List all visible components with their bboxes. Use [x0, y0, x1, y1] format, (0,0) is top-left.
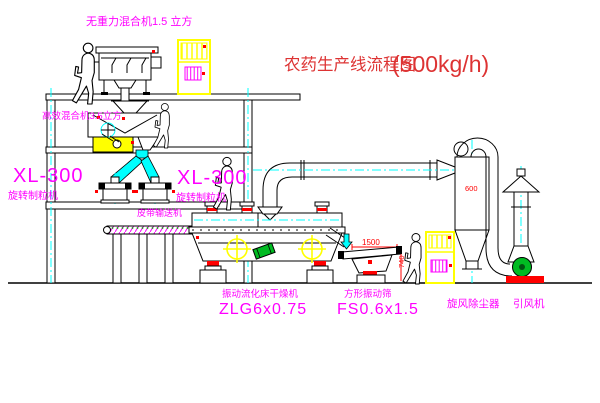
flow-diagram: 600 1500 740	[0, 0, 600, 403]
label-granulator-left: 旋转制粒机	[8, 189, 58, 202]
label-belt-conveyor: 皮带输送机	[137, 207, 182, 218]
label-granulator-right: 旋转制粒机	[176, 191, 226, 204]
label-dryer-model: ZLG6x0.75	[219, 301, 307, 318]
cad-drawing-canvas: 600 1500 740	[0, 0, 600, 403]
high-efficiency-mixer	[88, 101, 162, 152]
granulator-left	[95, 173, 135, 206]
dim-cyclone-diameter: 600	[465, 184, 478, 193]
label-cyclone: 旋风除尘器	[447, 297, 500, 310]
page-title-capacity: (500kg/h)	[392, 51, 489, 77]
dim-sieve-length: 1500	[362, 238, 380, 247]
label-sieve-model: FS0.6x1.5	[337, 301, 419, 318]
control-cabinet-right	[426, 232, 454, 283]
dim-sieve-height: 740	[397, 255, 406, 268]
cyclone-separator: 600	[454, 138, 512, 283]
label-gravity-free-mixer: 无重力混合机1.5 立方	[86, 14, 192, 28]
person-second-floor	[153, 103, 169, 148]
label-granulator-model-left: XL-300	[13, 165, 84, 187]
exhaust-duct	[253, 160, 472, 214]
label-granulator-model-right: XL-300	[177, 167, 248, 189]
control-cabinet-top	[178, 40, 210, 94]
label-dryer-name: 振动流化床干燥机	[222, 288, 299, 300]
person-ground	[403, 234, 421, 284]
label-sieve-name: 方形振动筛	[344, 288, 392, 300]
label-high-efficiency-mixer: 高效混合机3.5立方	[42, 110, 122, 122]
label-fan: 引风机	[513, 297, 545, 310]
granulator-right	[135, 173, 175, 206]
